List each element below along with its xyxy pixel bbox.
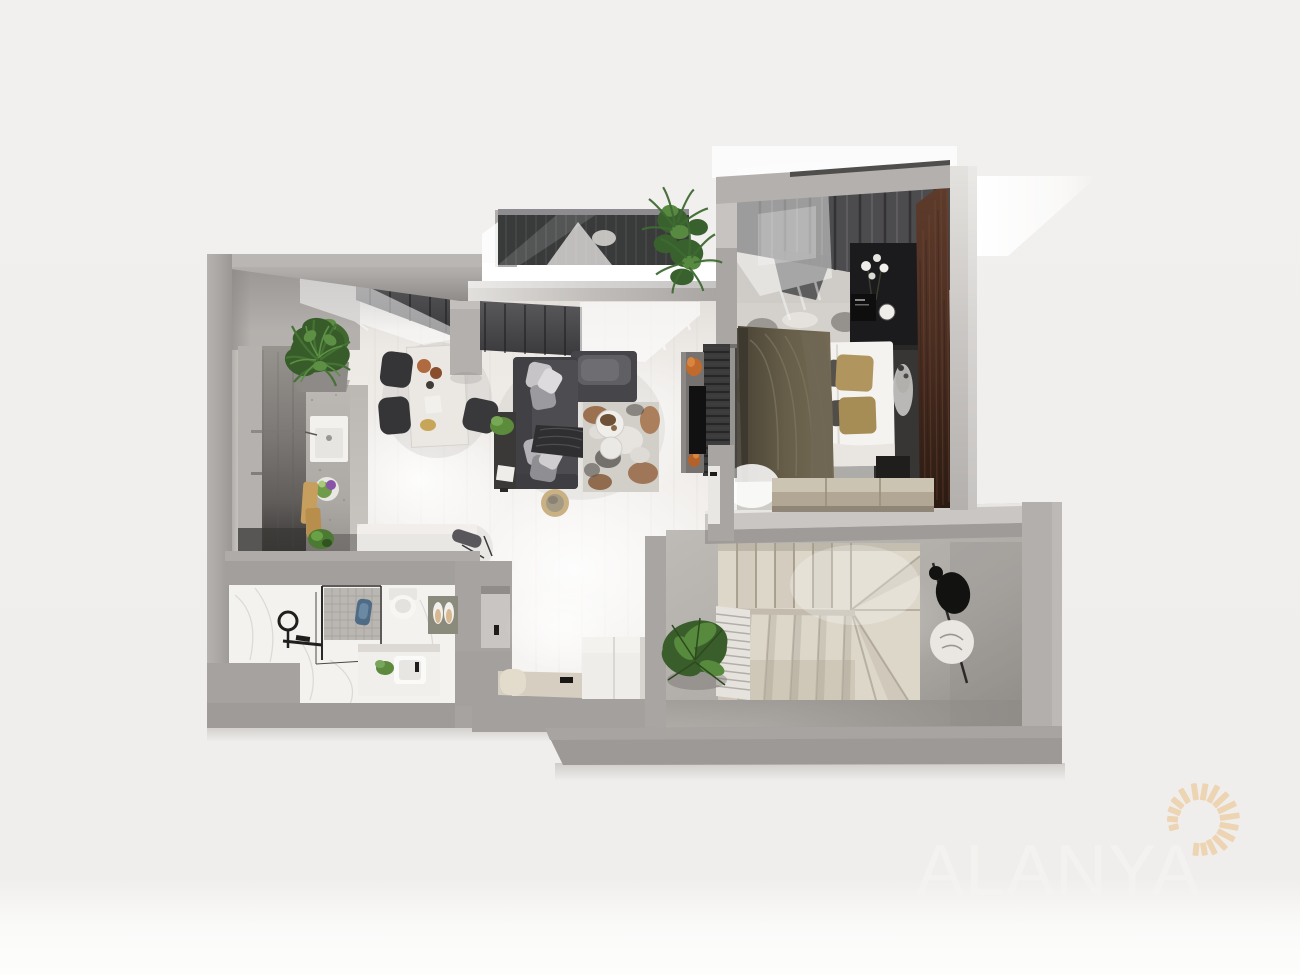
svg-text:ALANYA: ALANYA <box>916 831 1201 911</box>
